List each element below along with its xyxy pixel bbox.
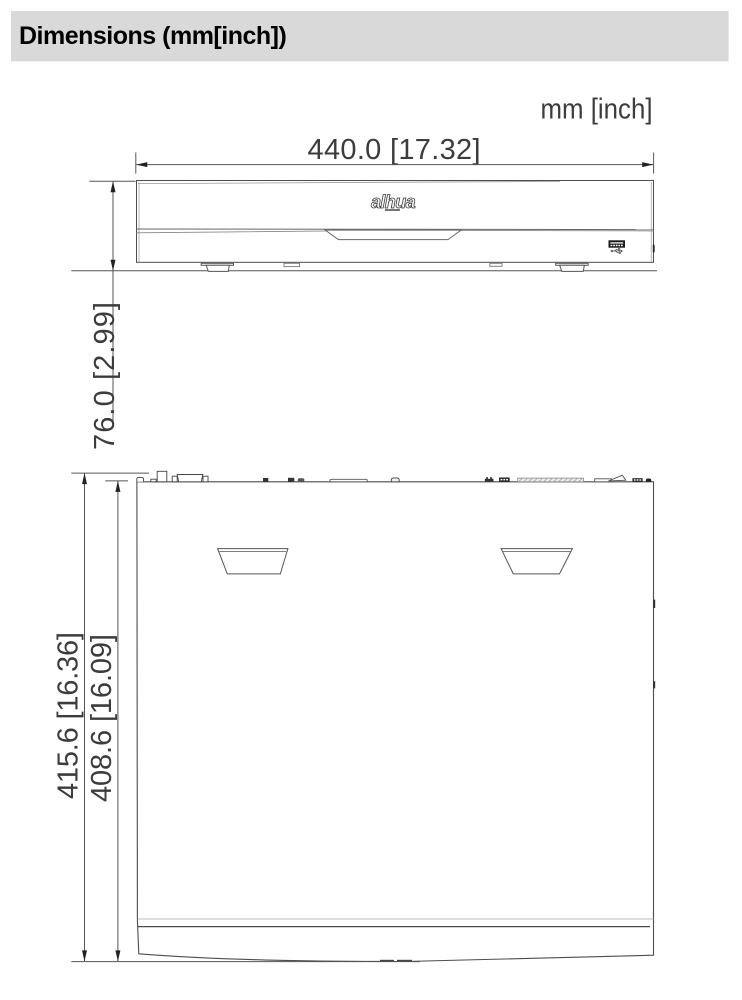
svg-text:Dimensions (mm[inch]): Dimensions (mm[inch]) bbox=[19, 22, 286, 50]
svg-text:415.6 [16.36]: 415.6 [16.36] bbox=[53, 632, 85, 799]
svg-text:408.6 [16.09]: 408.6 [16.09] bbox=[86, 634, 118, 802]
svg-text:mm [inch]: mm [inch] bbox=[541, 94, 653, 126]
svg-text:440.0 [17.32]: 440.0 [17.32] bbox=[308, 134, 481, 166]
svg-text:alhua: alhua bbox=[371, 192, 416, 212]
svg-text:76.0 [2.99]: 76.0 [2.99] bbox=[89, 302, 121, 450]
